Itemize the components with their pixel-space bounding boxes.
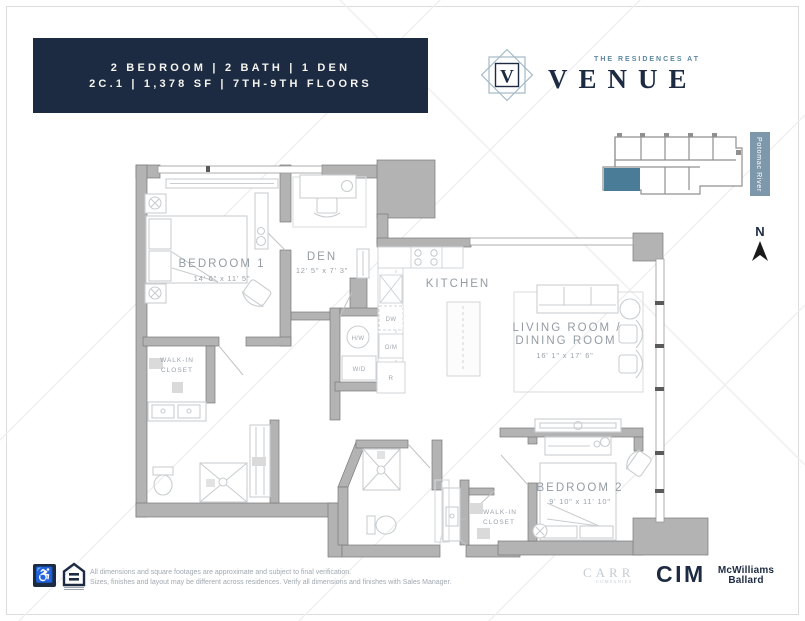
brand-tagline: THE RESIDENCES AT — [548, 56, 708, 63]
dishwasher-label: DW — [386, 317, 397, 323]
bedroom2-label: BEDROOM 2 — [536, 482, 623, 494]
oven-microwave-label: O/M — [385, 345, 398, 351]
den-label: DEN — [307, 251, 337, 263]
water-heater-label: H/W — [352, 336, 365, 342]
keyplan-footprint — [603, 133, 742, 194]
den-desk — [300, 175, 356, 198]
carr-logo-text: CARR — [583, 567, 634, 579]
venue-monogram: V — [500, 67, 514, 88]
wic1-label-line1: WALK-IN — [160, 357, 194, 364]
bedroom1-label: BEDROOM 1 — [178, 258, 265, 270]
wic2-label-line2: CLOSET — [483, 519, 515, 526]
keyplan-unit-highlight — [604, 168, 640, 191]
river-label: Potomac River — [755, 137, 762, 192]
ballard-line: Ballard — [712, 576, 780, 586]
river-label-box: Potomac River — [750, 132, 770, 196]
den-dims: 12' 5" x 7' 3" — [296, 266, 348, 275]
wic1-label-line2: CLOSET — [161, 367, 193, 374]
unit-summary-banner: 2 BEDROOM | 2 BATH | 1 DEN 2C.1 | 1,378 … — [33, 38, 428, 113]
bedroom1-furniture — [145, 179, 278, 311]
bath1-fixtures — [148, 402, 270, 502]
footer: ♿ All dimensions and square footages are… — [0, 560, 805, 610]
disclaimer-text: All dimensions and square footages are a… — [90, 568, 451, 588]
carr-companies-logo: CARR COMPANIES — [583, 567, 634, 584]
unit-details-line: 2C.1 | 1,378 SF | 7TH-9TH FLOORS — [89, 78, 372, 90]
disclaimer-line-1: All dimensions and square footages are a… — [90, 568, 451, 578]
brand-logo: V THE RESIDENCES AT VENUE — [478, 46, 708, 104]
dining-table — [620, 299, 640, 319]
bath2-fixtures — [363, 449, 460, 542]
venue-emblem-icon: V — [478, 46, 536, 104]
north-arrow: N — [752, 224, 768, 261]
bedroom1-dims: 14' 6" x 11' 5" — [194, 274, 251, 283]
brand-name: VENUE — [548, 64, 708, 95]
disclaimer-line-2: Sizes, finishes and layout may be differ… — [90, 578, 451, 588]
wic2-label-line1: WALK-IN — [483, 509, 517, 516]
toilet1 — [154, 475, 172, 495]
equal-housing-icon — [62, 562, 86, 597]
mcwilliams-ballard-logo: McWilliams Ballard — [712, 566, 780, 586]
north-arrow-icon — [752, 241, 768, 261]
washer-dryer-label: W/D — [353, 367, 366, 373]
bedroom2-dims: 9' 10" x 11' 10" — [549, 497, 611, 506]
sofa — [537, 285, 618, 313]
unit-type-line: 2 BEDROOM | 2 BATH | 1 DEN — [111, 62, 351, 74]
cim-logo: CIM — [656, 561, 706, 588]
toilet2 — [376, 516, 396, 534]
refrigerator-label: R — [389, 376, 394, 382]
accessibility-icon: ♿ — [33, 564, 56, 587]
north-label: N — [755, 224, 764, 239]
living-dims: 16' 1" x 17' 6" — [536, 351, 593, 360]
kitchen-label: KITCHEN — [426, 278, 490, 290]
living-label-line1: LIVING ROOM / — [512, 322, 621, 334]
living-label-line2: DINING ROOM — [515, 335, 616, 347]
